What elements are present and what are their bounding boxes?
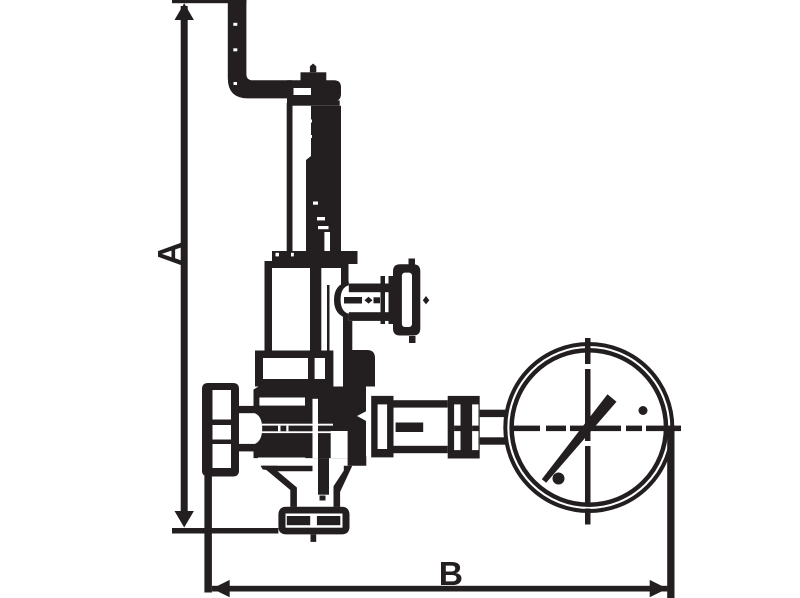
svg-text:A: A: [152, 242, 189, 266]
svg-text:B: B: [439, 556, 463, 593]
